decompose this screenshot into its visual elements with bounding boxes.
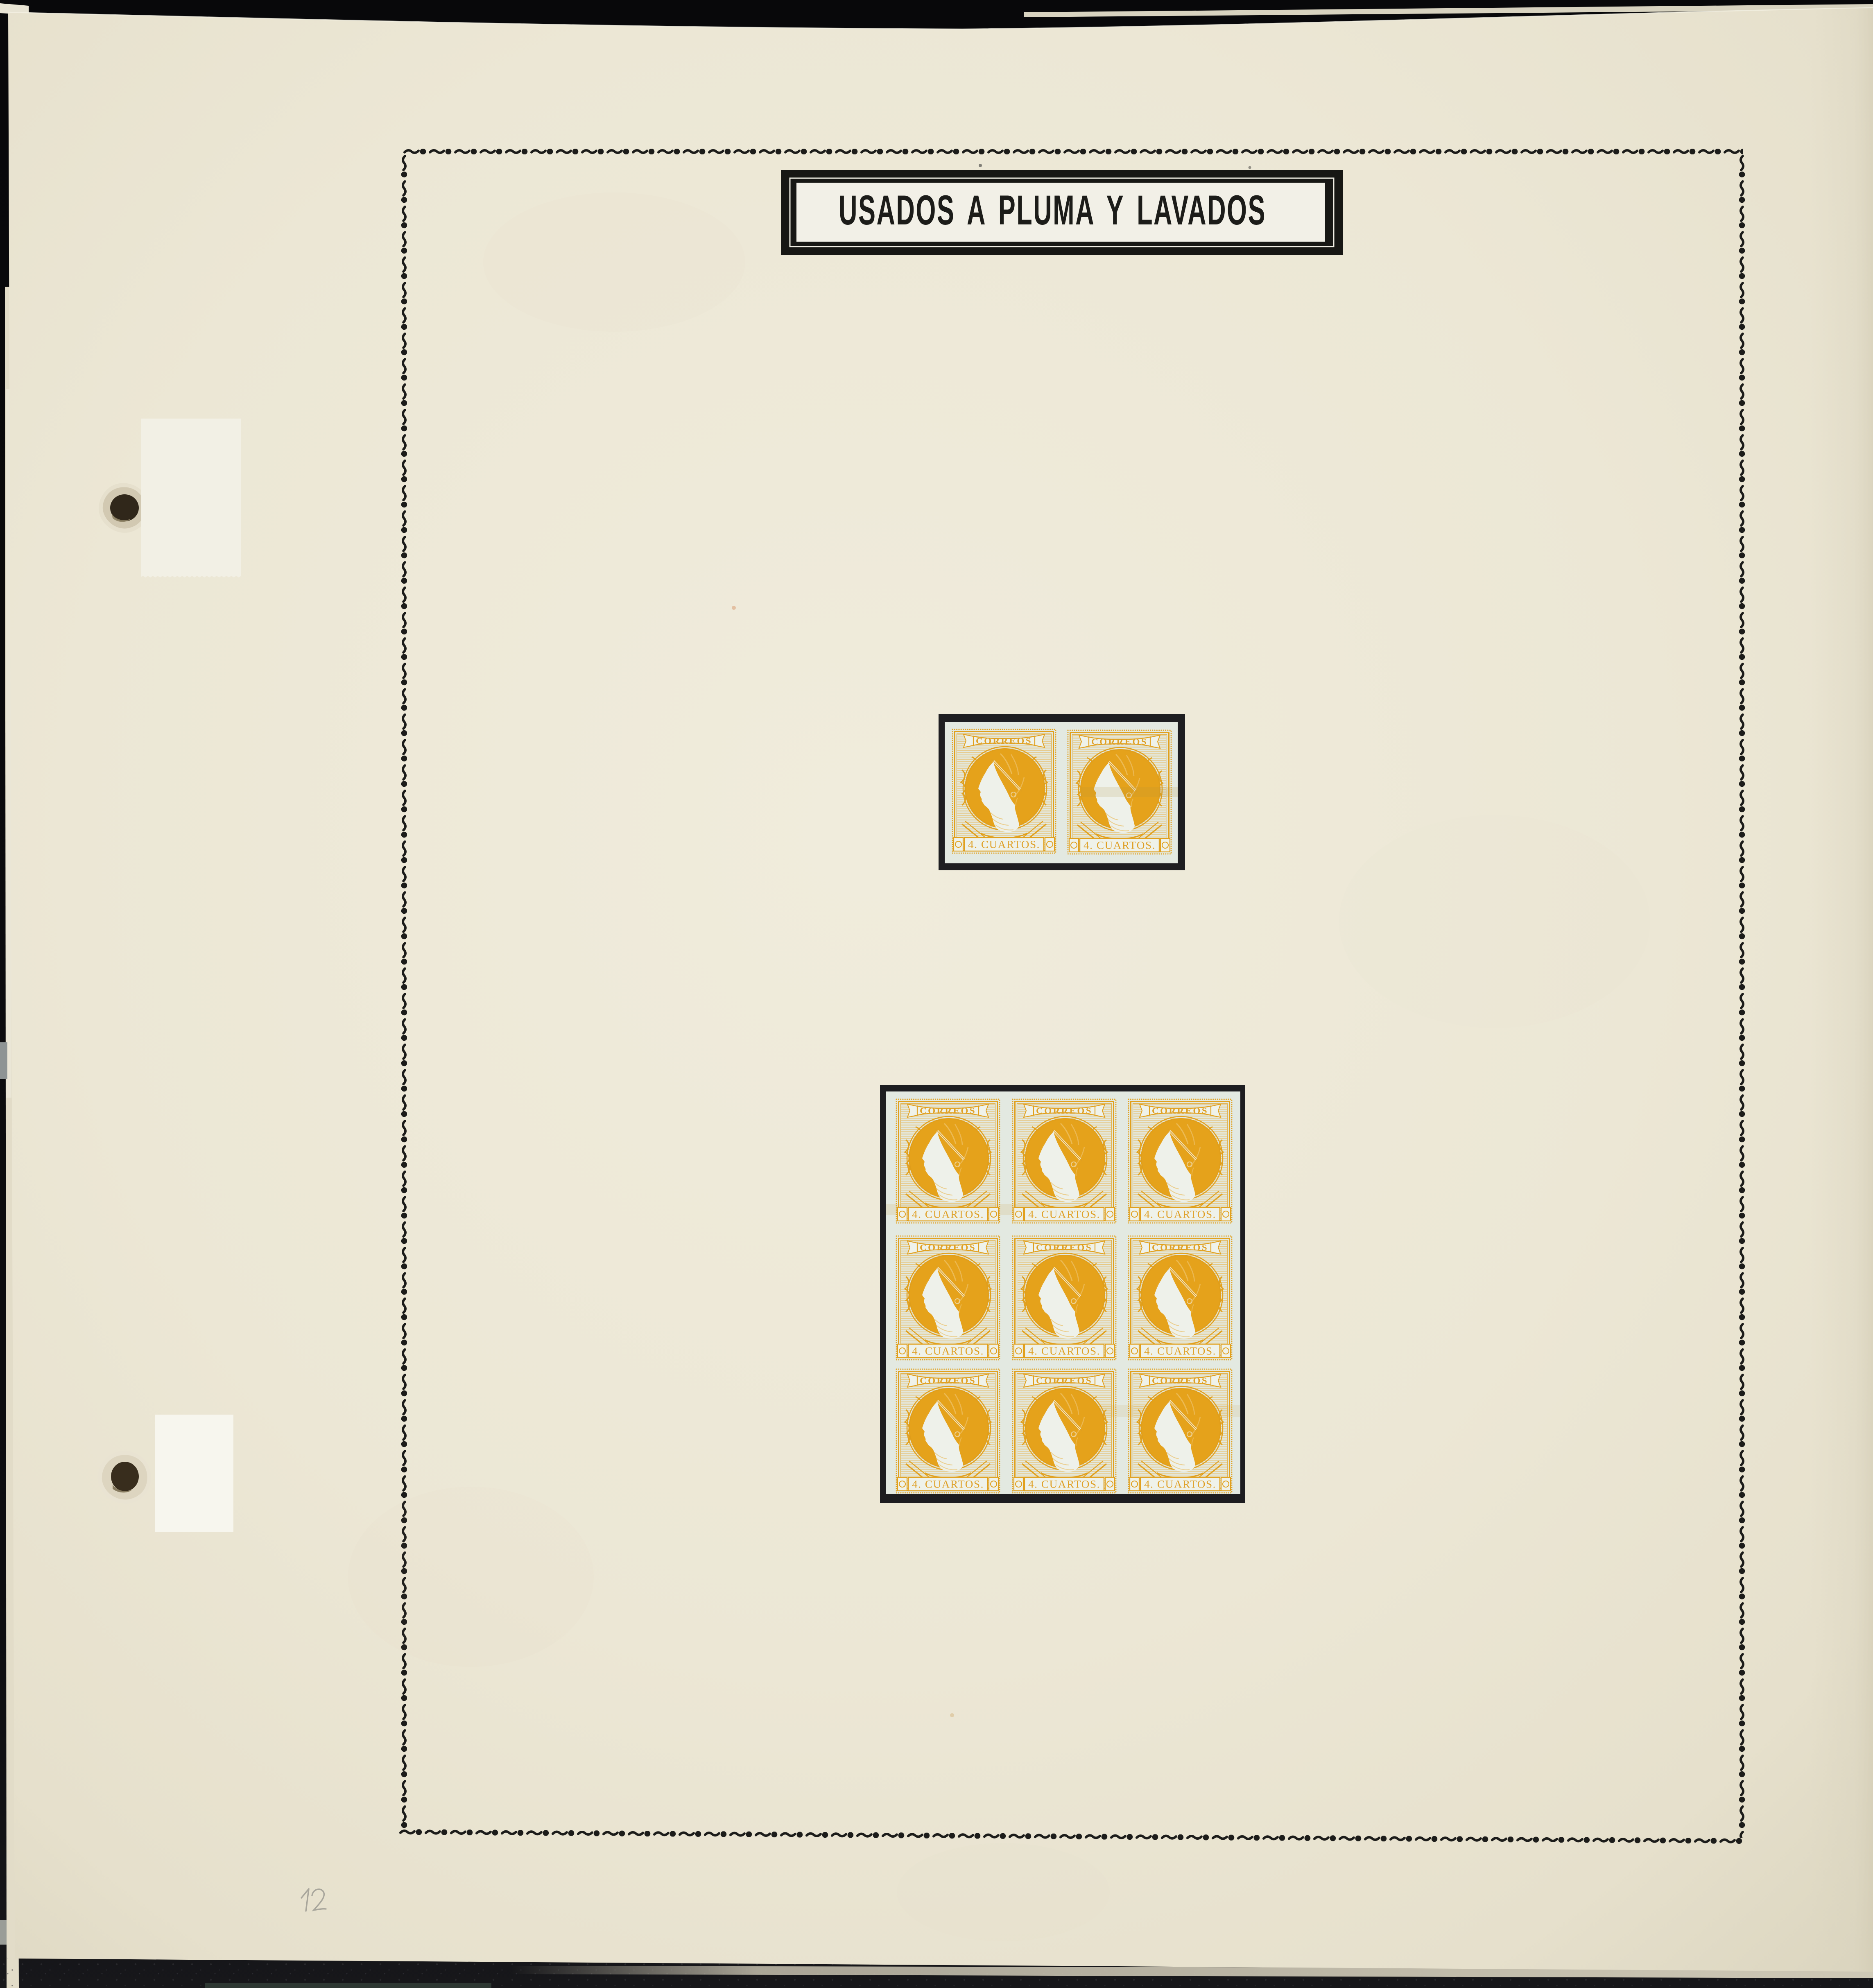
svg-text:USADOS A PLUMA Y LAVADOS: USADOS A PLUMA Y LAVADOS: [839, 187, 1266, 233]
